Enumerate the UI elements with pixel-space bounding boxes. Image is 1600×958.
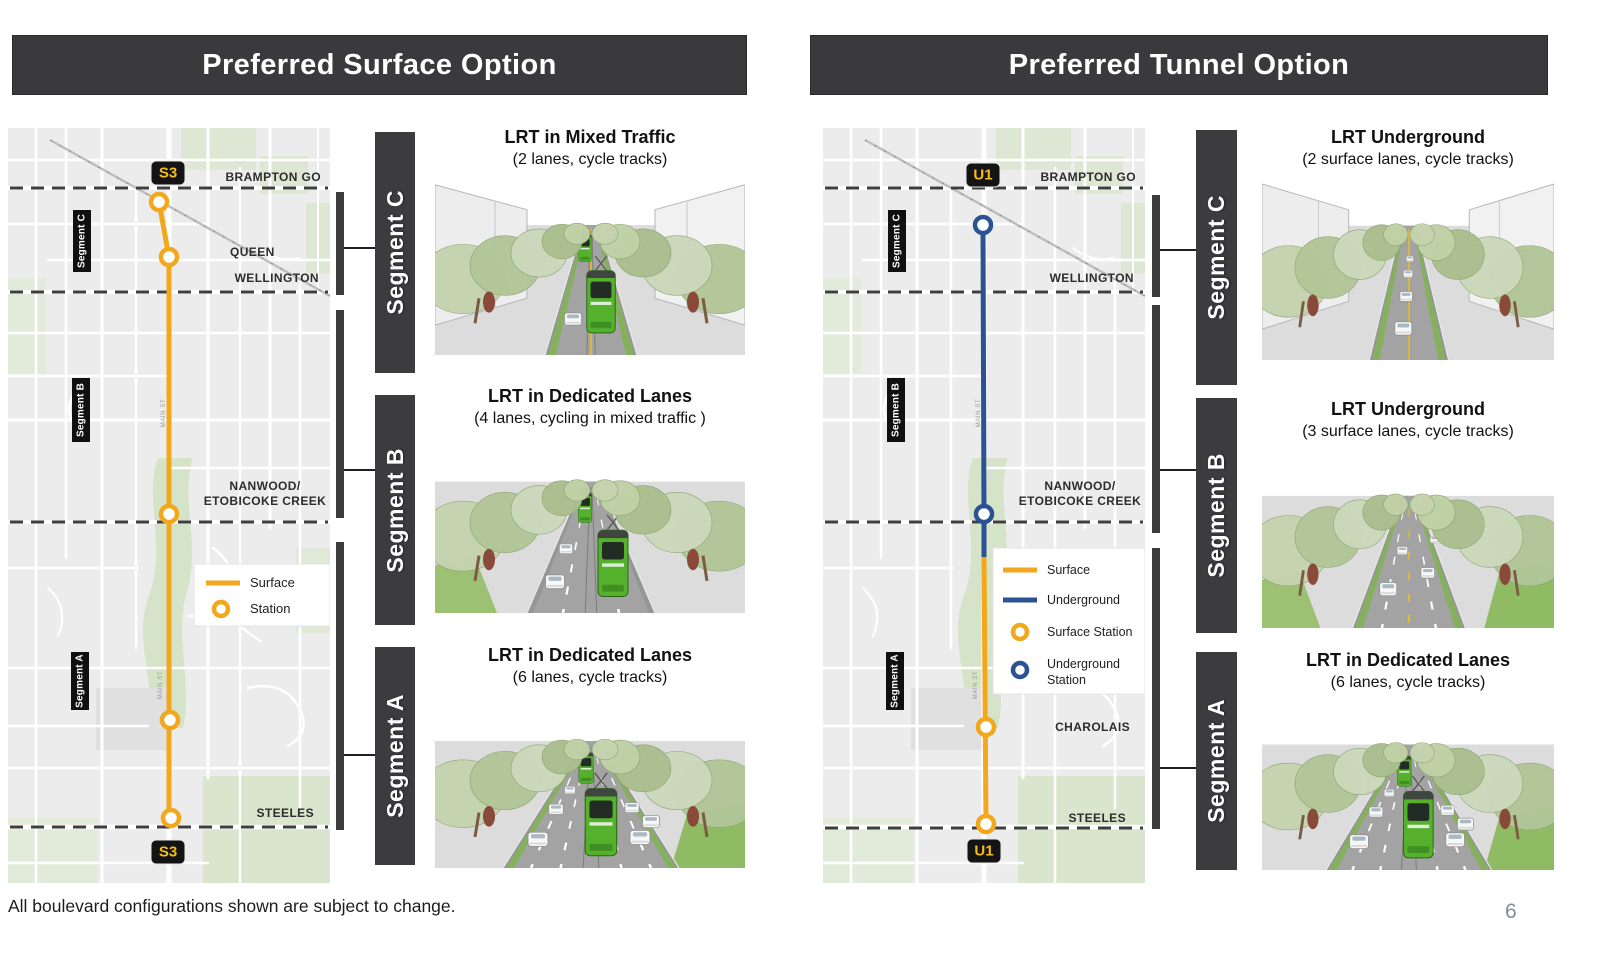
- legend-underground-station-label-1: Underground: [1047, 657, 1120, 671]
- footnote: All boulevard configurations shown are s…: [8, 896, 456, 917]
- segment-bar-surface-a: Segment A: [375, 647, 415, 865]
- legend-underground-station-swatch: [1013, 663, 1027, 677]
- station-queen: [161, 249, 177, 265]
- badge-s3-bottom: S3: [151, 840, 185, 864]
- map-segment-b-box: Segment B: [72, 378, 90, 442]
- connector-tunnel-b: [1160, 469, 1196, 471]
- label-brampton-go: BRAMPTON GO: [1040, 170, 1136, 184]
- label-nanwood-2: ETOBICOKE CREEK: [204, 494, 326, 508]
- map-surface: MAIN ST MAIN ST S3 S3 Segment C Segment …: [8, 128, 330, 883]
- label-queen: QUEEN: [230, 245, 275, 259]
- label-steeles: STEELES: [257, 806, 314, 820]
- rendering-tunnel-segment-a: [1262, 698, 1554, 870]
- label-wellington: WELLINGTON: [1050, 271, 1134, 285]
- label-nanwood-2: ETOBICOKE CREEK: [1019, 494, 1141, 508]
- map-segment-c-box: Segment C: [888, 210, 906, 272]
- bracket-surface-b: [336, 310, 344, 518]
- caption-surface-c-sub: (2 lanes, cycle tracks): [435, 151, 745, 169]
- bracket-surface-c: [336, 192, 344, 295]
- main-st-label: MAIN ST: [976, 399, 982, 428]
- rendering-surface-segment-b: [435, 433, 745, 613]
- slide: Preferred Surface Option MAIN ST MAIN ST…: [0, 0, 1600, 958]
- header-tunnel-option: Preferred Tunnel Option: [810, 35, 1548, 95]
- rendering-tunnel-segment-c: [1262, 176, 1554, 360]
- surface-station-steeles: [978, 816, 994, 832]
- map-segment-c-box: Segment C: [73, 210, 91, 272]
- legend-surface-label: Surface: [1047, 563, 1090, 577]
- station-steeles: [163, 810, 179, 826]
- segment-bar-surface-c: Segment C: [375, 132, 415, 373]
- caption-tunnel-a-sub: (6 lanes, cycle tracks): [1262, 674, 1554, 692]
- rendering-tunnel-segment-b: [1262, 447, 1554, 628]
- svg-text:U1: U1: [973, 167, 992, 184]
- badge-u1-top: U1: [966, 163, 1000, 187]
- caption-tunnel-b-title: LRT Underground: [1262, 399, 1554, 420]
- svg-text:Segment A: Segment A: [75, 654, 86, 708]
- legend-surface-label: Surface: [250, 575, 295, 590]
- legend-station-label: Station: [250, 601, 290, 616]
- caption-surface-a-sub: (6 lanes, cycle tracks): [435, 669, 745, 687]
- main-st-label: MAIN ST: [973, 671, 979, 700]
- legend-surface-station-label: Surface Station: [1047, 625, 1133, 639]
- caption-tunnel-c-title: LRT Underground: [1262, 127, 1554, 148]
- svg-text:Segment A: Segment A: [890, 654, 901, 708]
- connector-tunnel-c: [1160, 249, 1196, 251]
- rendering-surface-segment-a: [435, 694, 745, 868]
- svg-text:Segment B: Segment B: [891, 383, 902, 437]
- legend-underground-station-label-2: Station: [1047, 673, 1086, 687]
- label-brampton-go: BRAMPTON GO: [225, 170, 321, 184]
- main-st-label: MAIN ST: [158, 671, 164, 700]
- caption-surface-b-title: LRT in Dedicated Lanes: [435, 386, 745, 407]
- segment-bar-tunnel-b: Segment B: [1196, 398, 1237, 633]
- segment-bar-surface-b: Segment B: [375, 395, 415, 625]
- header-surface-title: Preferred Surface Option: [202, 49, 556, 82]
- svg-text:U1: U1: [974, 843, 993, 860]
- label-nanwood-1: NANWOOD/: [1044, 479, 1115, 493]
- route-surface-line: [984, 557, 986, 824]
- label-charolais: CHAROLAIS: [1055, 720, 1130, 734]
- caption-surface-c-title: LRT in Mixed Traffic: [435, 127, 745, 148]
- svg-text:Segment B: Segment B: [76, 383, 87, 437]
- legend-underground-label: Underground: [1047, 593, 1120, 607]
- header-tunnel-title: Preferred Tunnel Option: [1009, 49, 1350, 82]
- label-steeles: STEELES: [1069, 811, 1126, 825]
- segment-bar-tunnel-a: Segment A: [1196, 652, 1237, 870]
- connector-surface-b: [344, 469, 375, 471]
- caption-tunnel-a-title: LRT in Dedicated Lanes: [1262, 650, 1554, 671]
- legend-surface-map: Surface Station: [194, 564, 330, 626]
- surface-station-charolais: [978, 719, 994, 735]
- badge-s3-top: S3: [151, 161, 185, 185]
- connector-surface-c: [344, 247, 375, 249]
- map-segment-a-box: Segment A: [886, 652, 904, 710]
- bracket-tunnel-b: [1152, 305, 1160, 533]
- segment-bar-tunnel-c: Segment C: [1196, 130, 1237, 385]
- rendering-surface-segment-c: [435, 177, 745, 355]
- station-charolais-area: [162, 712, 178, 728]
- bracket-surface-a: [336, 542, 344, 830]
- legend-tunnel-map: Surface Underground Surface Station Unde…: [993, 548, 1145, 694]
- label-wellington: WELLINGTON: [235, 271, 319, 285]
- svg-text:S3: S3: [159, 165, 177, 182]
- svg-text:Segment C: Segment C: [892, 214, 903, 268]
- main-st-label: MAIN ST: [161, 399, 167, 428]
- svg-text:Segment C: Segment C: [77, 214, 88, 268]
- bracket-tunnel-c: [1152, 195, 1160, 297]
- label-nanwood-1: NANWOOD/: [229, 479, 300, 493]
- page-number: 6: [1505, 900, 1517, 924]
- caption-tunnel-c-sub: (2 surface lanes, cycle tracks): [1262, 151, 1554, 169]
- legend-surface-station-swatch: [1013, 625, 1027, 639]
- badge-u1-bottom: U1: [967, 839, 1001, 863]
- map-tunnel: MAIN ST MAIN ST U1 U1 Segment C Segment …: [823, 128, 1145, 883]
- caption-surface-a-title: LRT in Dedicated Lanes: [435, 645, 745, 666]
- map-segment-a-box: Segment A: [71, 652, 89, 710]
- svg-text:S3: S3: [159, 844, 177, 861]
- station-nanwood: [161, 506, 177, 522]
- bracket-tunnel-a: [1152, 548, 1160, 829]
- connector-tunnel-a: [1160, 767, 1196, 769]
- map-segment-b-box: Segment B: [887, 378, 905, 442]
- header-surface-option: Preferred Surface Option: [12, 35, 747, 95]
- station-brampton-go: [151, 194, 167, 210]
- underground-station-brampton-go: [975, 217, 991, 233]
- underground-station-nanwood: [976, 506, 992, 522]
- caption-tunnel-b-sub: (3 surface lanes, cycle tracks): [1262, 423, 1554, 441]
- caption-surface-b-sub: (4 lanes, cycling in mixed traffic ): [435, 410, 745, 428]
- legend-station-swatch: [214, 602, 228, 616]
- connector-surface-a: [344, 754, 375, 756]
